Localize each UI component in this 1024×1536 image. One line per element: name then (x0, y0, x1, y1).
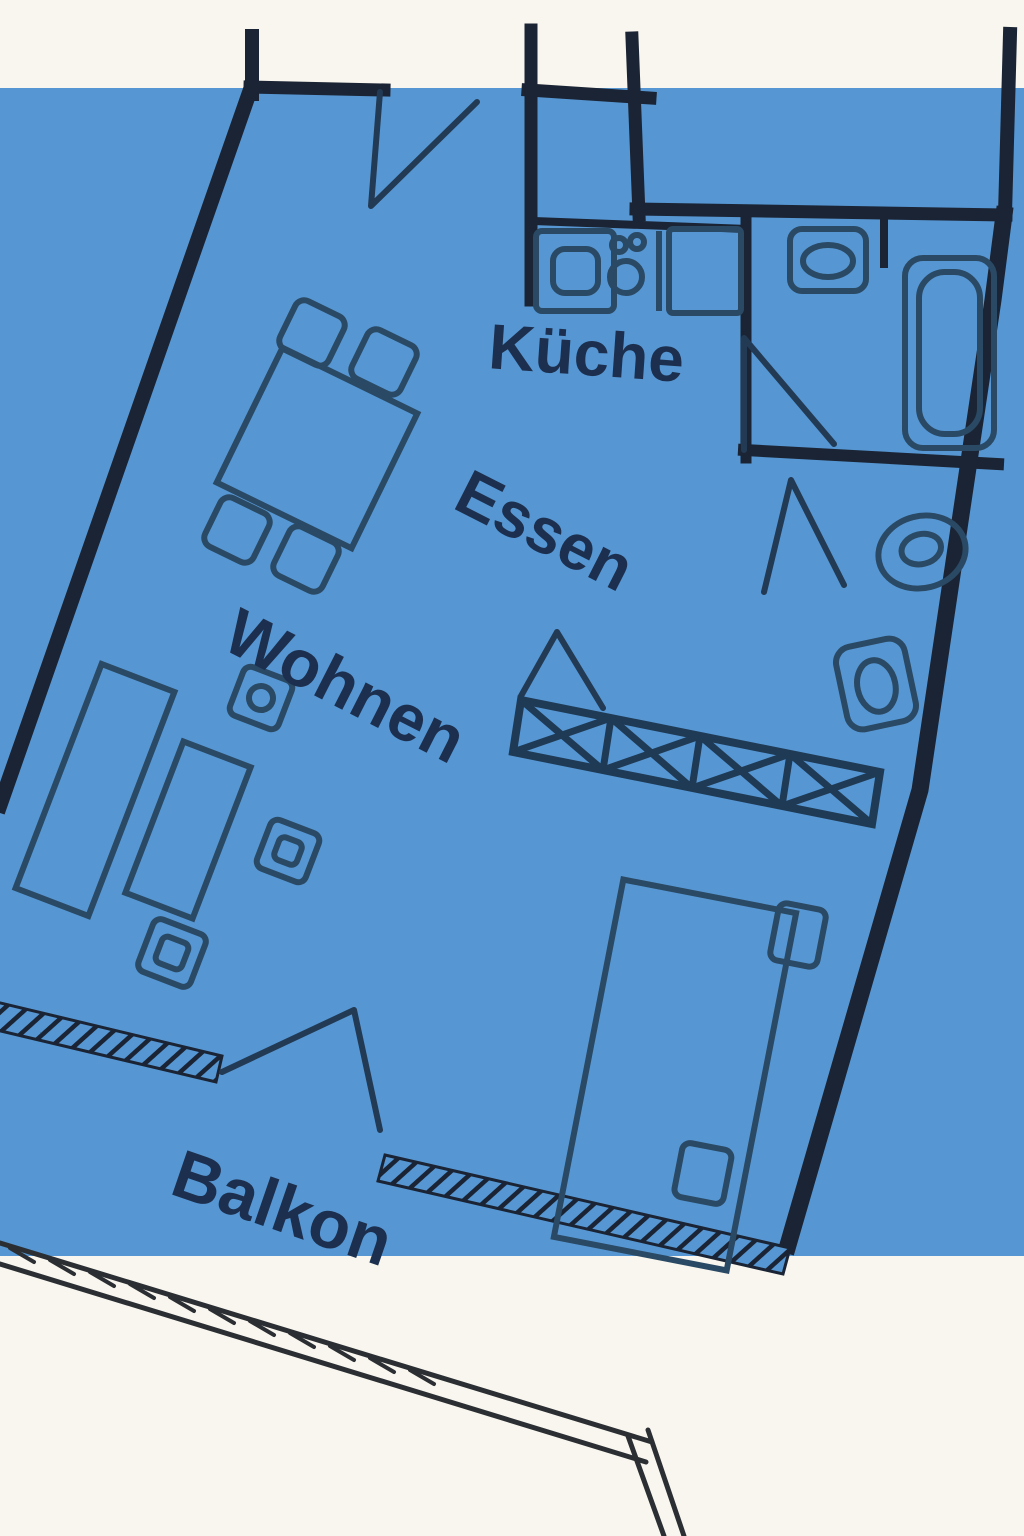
room-label-kueche: Küche (486, 310, 686, 395)
wall-top-left-segment (250, 87, 384, 90)
wall-stub-top-right (1005, 34, 1010, 214)
wall-stub-bath-west (632, 38, 639, 215)
blue-background (0, 88, 1024, 1256)
wall-bath-top (636, 209, 1006, 215)
floor-plan-svg: Küche Essen Wohnen Balkon (0, 0, 1024, 1536)
floor-plan-page: Küche Essen Wohnen Balkon (0, 0, 1024, 1536)
